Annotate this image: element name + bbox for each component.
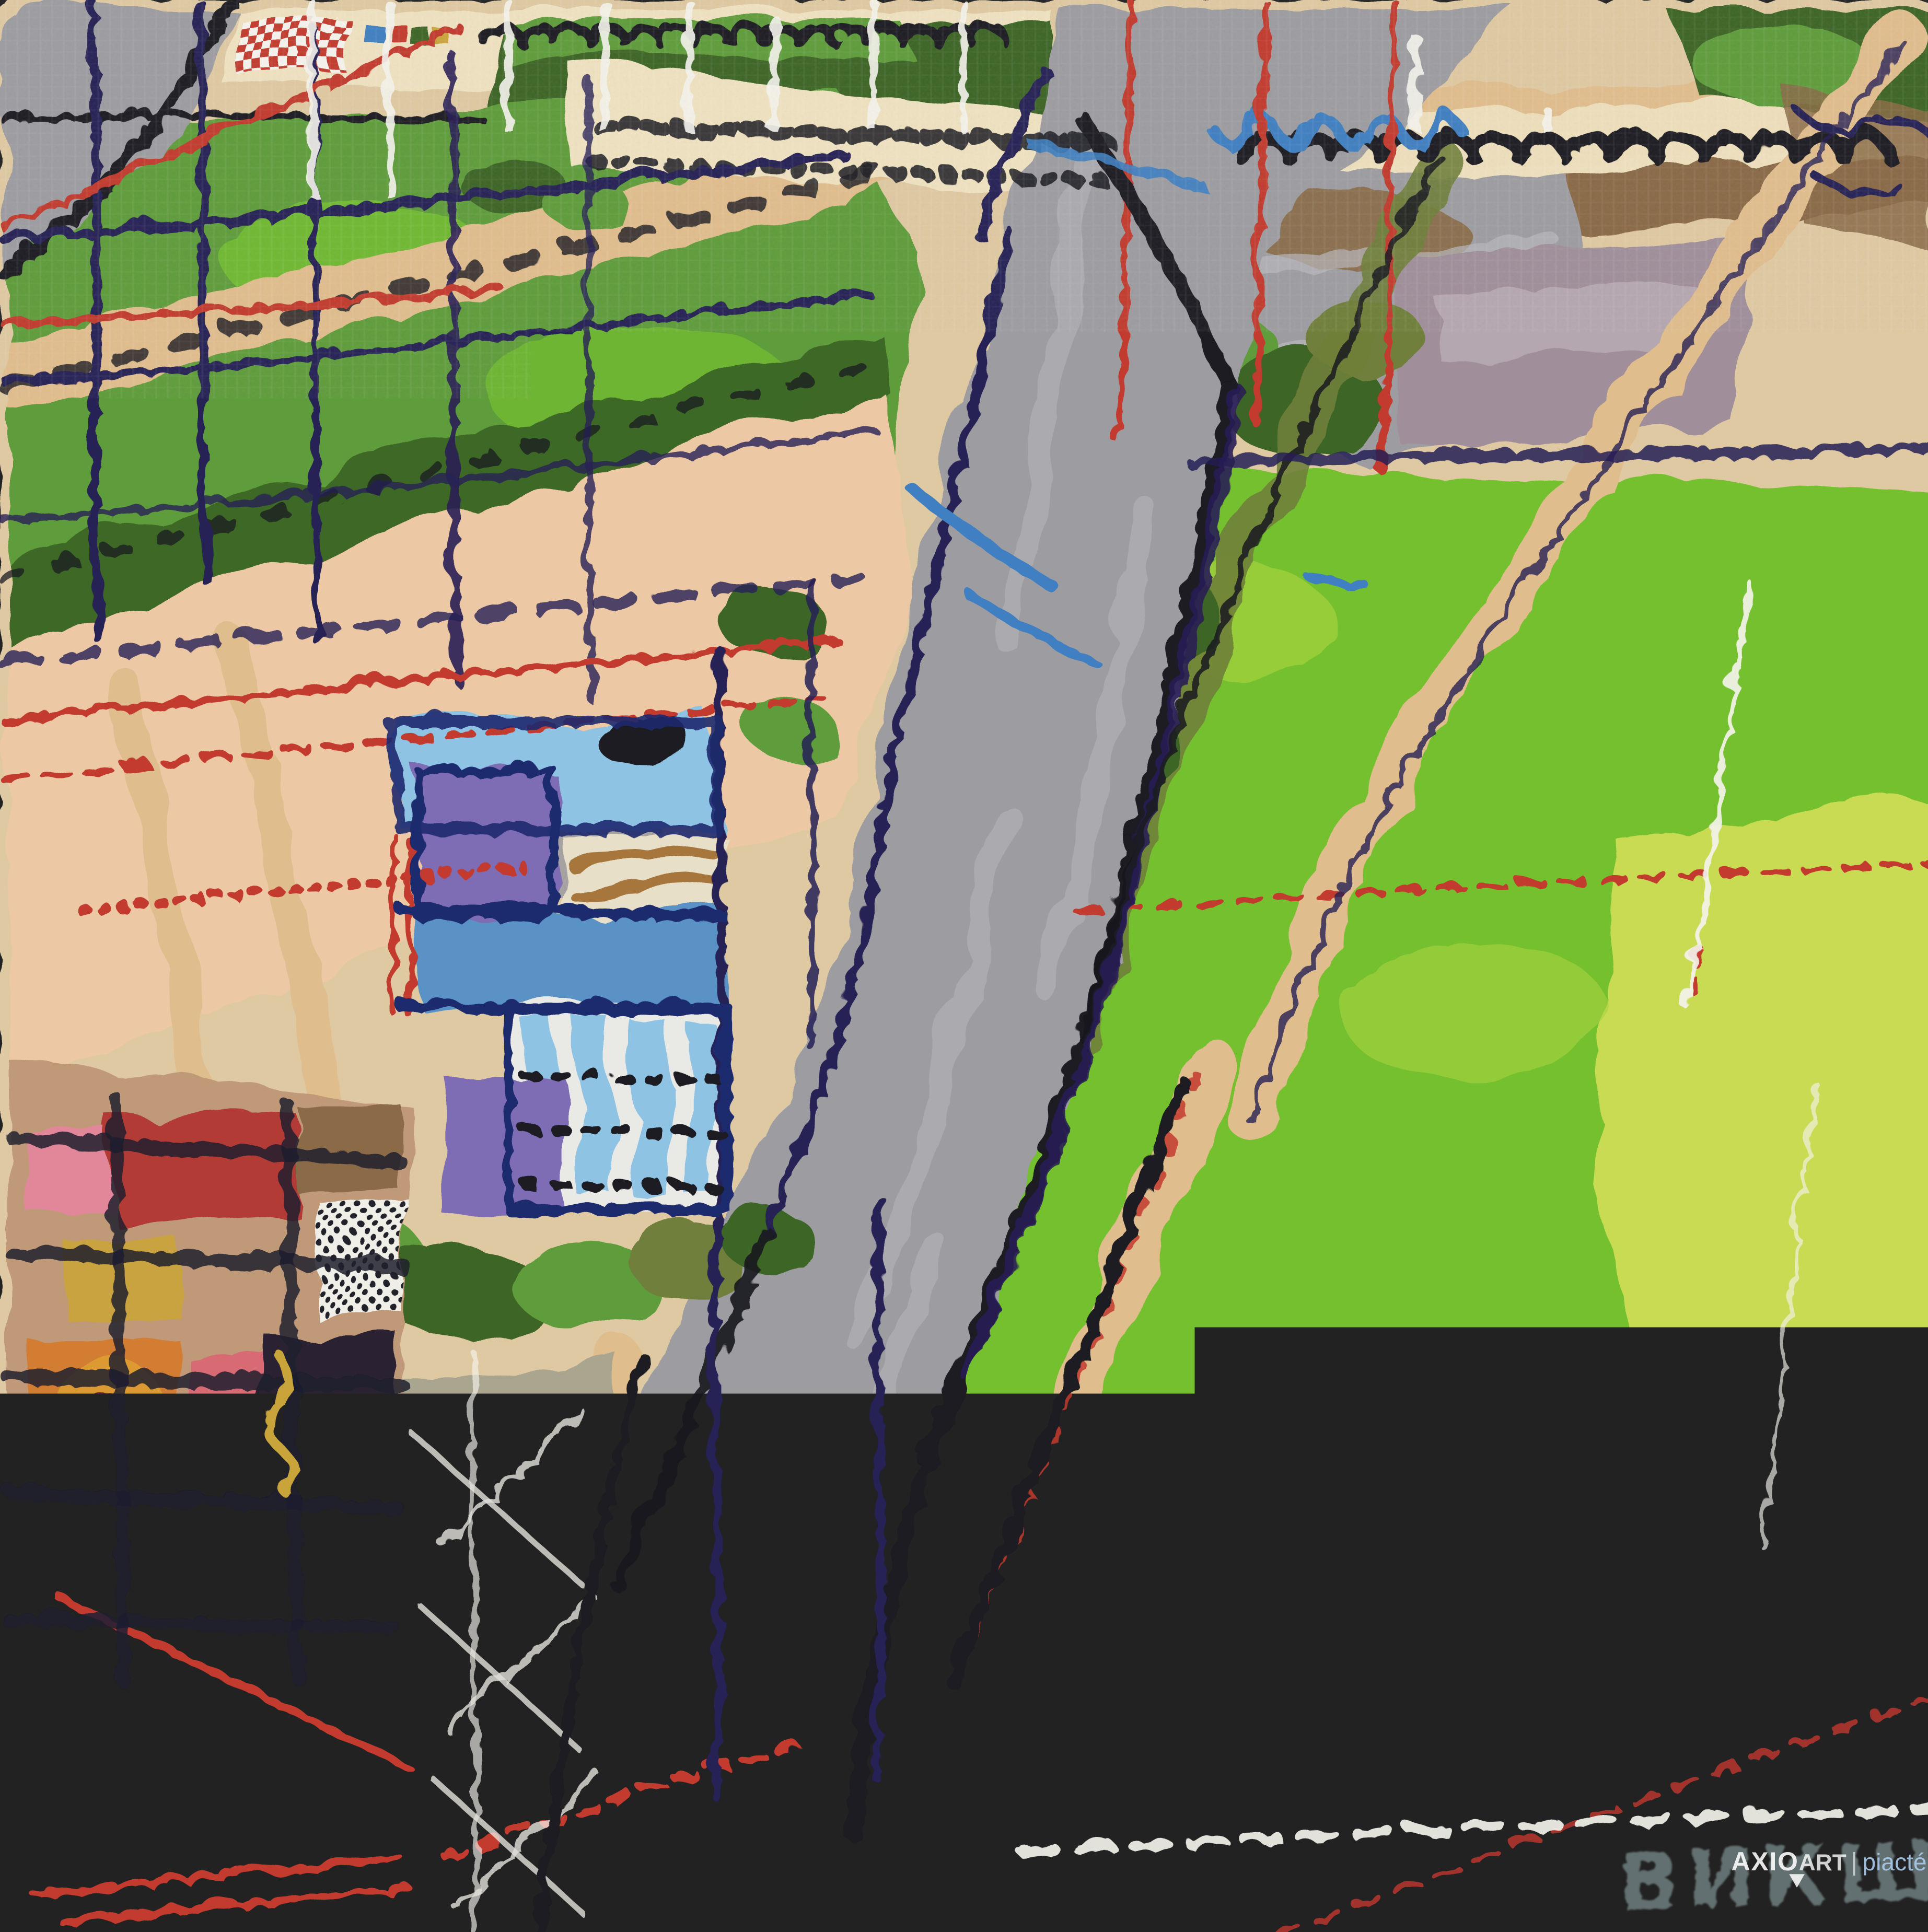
- watermark-tagline: piactér: [1863, 1848, 1928, 1876]
- painting-canvas: ВИКШaN AXIO ART | piactér: [0, 0, 1928, 1932]
- painting-photo: ВИКШaN AXIO ART | piactér: [0, 0, 1928, 1932]
- watermark-brand-primary: AXIO: [1732, 1847, 1799, 1876]
- canvas-grain: [0, 0, 1928, 1932]
- watermark-separator: |: [1851, 1848, 1857, 1876]
- watermark-brand-secondary: ART: [1799, 1850, 1846, 1876]
